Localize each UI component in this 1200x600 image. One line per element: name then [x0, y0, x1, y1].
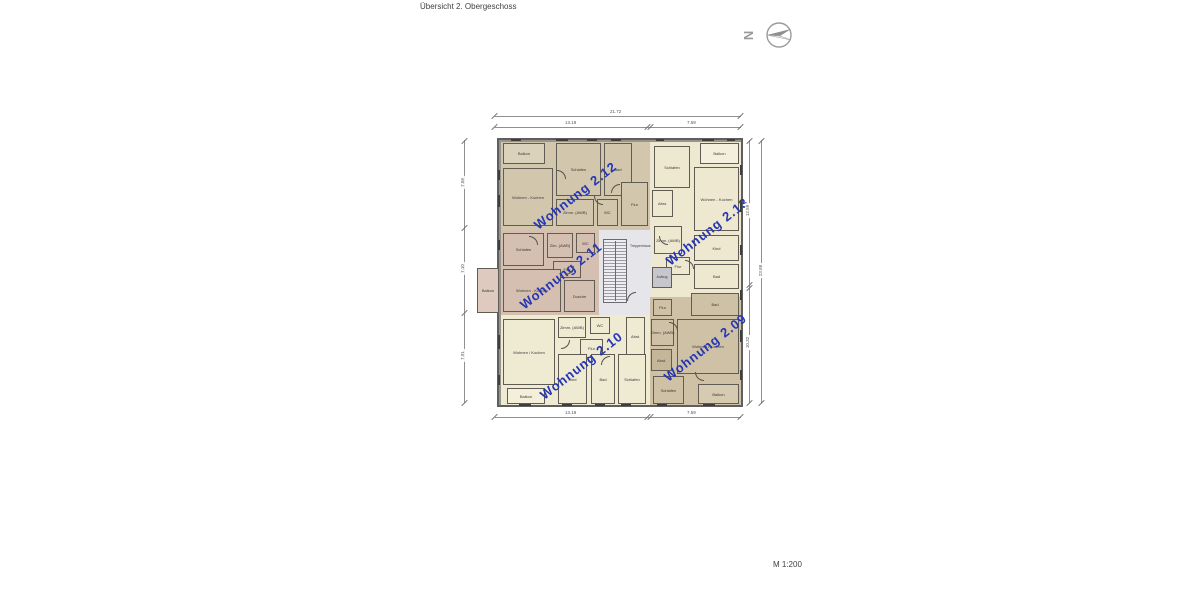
window-mark — [498, 195, 500, 207]
stairwell-label: Treppenhaus — [630, 244, 650, 248]
room-balcony: Balkon — [698, 384, 739, 404]
window-mark — [562, 404, 572, 406]
dimension-line — [749, 140, 750, 403]
window-mark — [498, 170, 500, 180]
window-mark — [621, 404, 631, 406]
window-mark — [595, 404, 605, 406]
window-mark — [727, 139, 735, 141]
window-mark — [656, 139, 664, 141]
window-mark — [740, 200, 742, 212]
drawing-sheet: { "page": { "title": "Übersicht 2. Oberg… — [0, 0, 1200, 600]
window-mark — [740, 245, 742, 255]
window-mark — [498, 240, 500, 250]
dimension-label: 7.59 — [685, 410, 698, 415]
compass-icon — [764, 20, 794, 50]
window-mark — [740, 165, 742, 175]
dimension-line — [495, 127, 741, 128]
floor-plan: Balkon Wohnen - Kochen Schlafen Bad Zimm… — [497, 138, 743, 407]
window-mark — [657, 404, 667, 406]
dimension-label: 7.91 — [460, 349, 465, 362]
room-storage: Abst. — [626, 317, 645, 355]
room-living-kitchen: Wohnen / Kochen — [503, 319, 555, 385]
room-balcony: Balkon — [503, 143, 545, 164]
room-bedroom: Schlafen — [618, 354, 646, 404]
dimension-label: 7.58 — [460, 176, 465, 189]
page-title: Übersicht 2. Obergeschoss — [420, 2, 517, 11]
room-hall: Flur — [621, 182, 648, 226]
room-hall: Flur — [653, 299, 672, 316]
room-bedroom: Schlafen — [503, 233, 544, 266]
dimension-label: 13.19 — [563, 410, 578, 415]
scale-label: M 1:200 — [773, 560, 802, 569]
dimension-tick — [737, 124, 743, 130]
room-bedroom: Schlafen — [654, 146, 690, 188]
room-awb: Zimm. (AWB) — [558, 317, 586, 338]
dimension-label: 7.59 — [685, 120, 698, 125]
north-label: N — [744, 27, 753, 45]
dimension-label: 23.88 — [758, 263, 763, 278]
window-mark — [511, 139, 521, 141]
elevator: Aufzug — [652, 267, 672, 288]
dimension-label: 13.19 — [563, 120, 578, 125]
window-mark — [740, 370, 742, 380]
room-balcony: Balkon — [700, 143, 739, 164]
dimension-label: 7.10 — [460, 262, 465, 275]
window-mark — [519, 404, 531, 406]
window-mark — [498, 375, 500, 385]
room-balcony: Balkon — [477, 268, 499, 313]
dimension-label: 10.32 — [745, 335, 750, 350]
dimension-label: 21.72 — [608, 109, 623, 114]
dimension-tick — [746, 400, 752, 406]
dimension-line — [495, 116, 741, 117]
dimension-tick — [737, 113, 743, 119]
room-storage: Abst. — [652, 190, 673, 217]
window-mark — [702, 139, 714, 141]
stair-rail — [615, 241, 616, 301]
room-wc: WC — [590, 317, 610, 334]
window-mark — [556, 139, 568, 141]
window-mark — [498, 335, 500, 349]
dimension-tick — [758, 400, 764, 406]
window-mark — [740, 290, 742, 300]
window-mark — [587, 139, 597, 141]
dimension-tick — [737, 414, 743, 420]
dimension-label: 12.59 — [745, 203, 750, 218]
room-bath: Bad — [691, 293, 739, 316]
room-awb: Zim. (AWB) — [547, 233, 573, 258]
dimension-line — [495, 417, 741, 418]
window-mark — [703, 404, 715, 406]
room-bath: Bad — [694, 264, 739, 289]
room-shower: Dusche — [564, 280, 595, 312]
dimension-tick — [461, 400, 467, 406]
window-mark — [611, 139, 621, 141]
window-mark — [740, 330, 742, 342]
